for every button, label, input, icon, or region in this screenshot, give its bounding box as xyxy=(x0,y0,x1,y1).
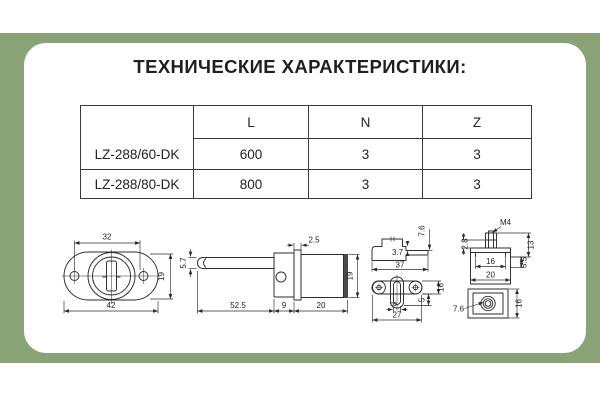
dim-strike-stud-height: 13 xyxy=(527,240,536,249)
dim-rod-diameter: 5.7 xyxy=(179,257,188,269)
dim-flange: 2.5 xyxy=(308,236,320,245)
dim-bracket-bar-height: 16 xyxy=(437,283,446,292)
technical-drawings: 32 42 19 5.7 xyxy=(50,215,546,335)
dim-strike-outer-width: 20 xyxy=(486,271,495,280)
table-row: LZ-288/80-DK 800 3 3 xyxy=(81,170,532,199)
dim-body-height: 19 xyxy=(346,271,355,280)
model-cell: LZ-288/80-DK xyxy=(81,170,194,199)
dim-bracket-hole-spacing: 27 xyxy=(393,311,402,320)
value-L: 800 xyxy=(194,170,309,199)
dim-strike-plan-height: 16 xyxy=(515,299,524,308)
page-title: ТЕХНИЧЕСКИЕ ХАРАКТЕРИСТИКИ: xyxy=(0,56,600,78)
col-header-L: L xyxy=(194,106,309,139)
dim-strike-thread: M4 xyxy=(500,218,512,227)
dim-bracket-width: 37 xyxy=(396,261,405,270)
dim-strike-hole-diameter: 7.6 xyxy=(453,305,465,314)
dim-body-length: 20 xyxy=(317,301,326,310)
col-header-N: N xyxy=(309,106,423,139)
dim-bracket-slot-width: 8 xyxy=(390,301,399,306)
drawing-plate-front: 32 42 19 xyxy=(62,233,173,314)
dim-bracket-step: 3.7 xyxy=(392,248,404,257)
dim-strike-collar: 2.8 xyxy=(461,238,470,250)
dim-bracket-offset: 5 xyxy=(418,297,427,302)
value-N: 3 xyxy=(309,139,423,170)
dim-plate-height: 19 xyxy=(157,272,166,281)
specs-table: LZ-288/60-DK L N Z 600 3 3 LZ-288/80-DK … xyxy=(80,105,532,199)
dim-plate-hole-spacing: 32 xyxy=(103,233,112,242)
value-Z: 3 xyxy=(423,139,532,170)
value-Z: 3 xyxy=(423,170,532,199)
col-header-Z: Z xyxy=(423,106,532,139)
drawing-strike: M4 13 2.8 16 20 5.5 xyxy=(453,218,536,318)
dim-plate-total-width: 42 xyxy=(107,301,116,310)
dim-block-width: 9 xyxy=(282,301,287,310)
spec-sheet: ТЕХНИЧЕСКИЕ ХАРАКТЕРИСТИКИ: LZ-288/60-DK… xyxy=(0,0,600,400)
value-N: 3 xyxy=(309,170,423,199)
drawing-lock-side: 5.7 2.5 19 52.5 9 20 xyxy=(179,236,360,314)
model-cell: LZ-288/60-DK xyxy=(81,106,194,170)
drawing-bracket: 3.7 7.6 37 xyxy=(372,225,446,323)
dim-rod-length: 52.5 xyxy=(230,301,246,310)
dim-strike-inner-width: 16 xyxy=(486,257,495,266)
dim-strike-lip: 5.5 xyxy=(520,256,529,268)
value-L: 600 xyxy=(194,139,309,170)
dim-bracket-arm-height: 7.6 xyxy=(418,225,427,237)
